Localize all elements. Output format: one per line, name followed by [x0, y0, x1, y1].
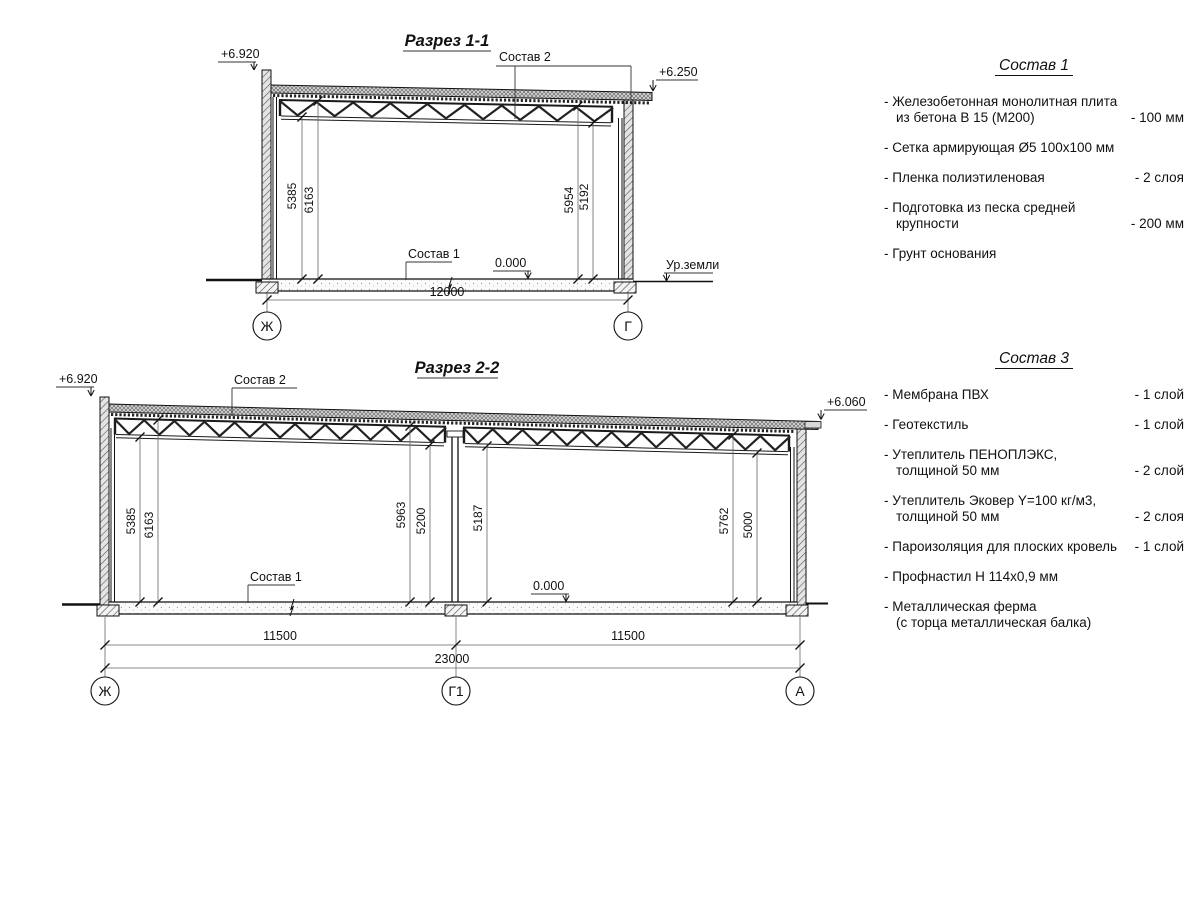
wall-left — [100, 397, 109, 612]
footing — [614, 282, 636, 293]
legend-line: - Сетка армирующая Ø5 100х100 мм — [884, 140, 1114, 156]
legend-line: - Утеплитель Эковер Y=100 кг/м3, — [884, 493, 1096, 509]
footing — [256, 282, 278, 293]
legend-line: (с торца металлическая балка) — [884, 615, 1091, 631]
legend-value: - 100 мм — [1125, 110, 1184, 126]
callout-sostav2: Состав 2 — [499, 50, 551, 64]
legend-sostav-1: Состав 1 - Железобетонная монолитная пли… — [884, 57, 1184, 276]
dim-height: 5385 — [124, 507, 138, 534]
legend-line: толщиной 50 мм — [884, 463, 1057, 479]
dim-height: 5963 — [394, 501, 408, 528]
dim-height: 5200 — [414, 507, 428, 534]
dim-height: 5192 — [577, 183, 591, 210]
callout-sostav2: Состав 2 — [234, 373, 286, 387]
legend-value: - 2 слоя — [1129, 509, 1184, 525]
dim-span: 11500 — [263, 629, 297, 643]
legend-line: толщиной 50 мм — [884, 509, 1096, 525]
legend-item: - Геотекстиль - 1 слой — [884, 417, 1184, 433]
drawing-sheet: { "section1": { "title": "Разрез 1-1", "… — [0, 0, 1200, 900]
legend-value: - 1 слой — [1129, 417, 1184, 433]
legend-item: - Утеплитель Эковер Y=100 кг/м3,толщиной… — [884, 493, 1184, 525]
legend-item: - Железобетонная монолитная плитаиз бето… — [884, 94, 1184, 126]
wall-left — [262, 70, 271, 286]
section-title: Разрез 2-2 — [415, 359, 500, 377]
legend-item: - Утеплитель ПЕНОПЛЭКС,толщиной 50 мм - … — [884, 447, 1184, 479]
legend-item: - Пленка полиэтиленовая - 2 слоя — [884, 170, 1184, 186]
legend-line: - Подготовка из песка средней — [884, 200, 1075, 216]
elevation-mark: +6.250 — [659, 65, 698, 79]
zero-level: 0.000 — [533, 579, 564, 593]
roof-slab — [271, 85, 652, 101]
elevation-mark: +6.920 — [221, 47, 260, 61]
elevation-mark: +6.060 — [827, 395, 866, 409]
roof-truss — [279, 100, 613, 126]
middle-column — [452, 437, 458, 606]
legend-title: Состав 1 — [884, 57, 1184, 75]
dim-height: 5000 — [741, 511, 755, 538]
legend-line: - Пароизоляция для плоских кровель — [884, 539, 1117, 555]
footing — [97, 605, 119, 616]
section-2-2: Разрез 2-2 +6.920 +6.060 Состав 2 Состав… — [56, 359, 867, 705]
footing — [445, 605, 467, 616]
legend-line: - Грунт основания — [884, 246, 996, 262]
legend-line: - Металлическая ферма — [884, 599, 1091, 615]
legend-item: - Металлическая ферма(с торца металличес… — [884, 599, 1184, 631]
legend-item: - Мембрана ПВХ - 1 слой — [884, 387, 1184, 403]
axis-label: Ж — [99, 683, 112, 699]
legend-value: - 200 мм — [1125, 216, 1184, 232]
legend-item: - Профнастил Н 114х0,9 мм — [884, 569, 1184, 585]
dim-height: 5762 — [717, 507, 731, 534]
legend-line: - Геотекстиль — [884, 417, 968, 433]
legend-title: Состав 3 — [884, 350, 1184, 368]
dim-height: 5187 — [471, 504, 485, 531]
elevation-mark: +6.920 — [59, 372, 98, 386]
section-1-1: Разрез 1-1 +6.920 +6.250 Состав 2 Состав… — [206, 32, 719, 340]
roof-slab — [109, 404, 818, 430]
dim-height: 6163 — [142, 511, 156, 538]
legend-value: - 1 слой — [1129, 387, 1184, 403]
column-cap — [447, 431, 463, 437]
axis-label: Г — [624, 318, 632, 334]
dim-span: 12000 — [430, 285, 465, 299]
legend-item: - Грунт основания — [884, 246, 1184, 262]
legend-line: - Мембрана ПВХ — [884, 387, 989, 403]
axis-label: А — [795, 683, 805, 699]
legend-title-text: Состав 1 — [995, 57, 1073, 76]
footing — [786, 605, 808, 616]
legend-value: - 2 слоя — [1129, 170, 1184, 186]
legend-line: - Пленка полиэтиленовая — [884, 170, 1045, 186]
wall-right — [624, 100, 633, 286]
legend-item: - Пароизоляция для плоских кровель - 1 с… — [884, 539, 1184, 555]
dim-height: 5385 — [285, 182, 299, 209]
callout-sostav1: Состав 1 — [408, 247, 460, 261]
ground-label: Ур.земли — [666, 258, 719, 272]
legend-line: - Утеплитель ПЕНОПЛЭКС, — [884, 447, 1057, 463]
roof-truss — [114, 419, 446, 446]
legend-value: - 2 слой — [1129, 463, 1184, 479]
legend-line: - Профнастил Н 114х0,9 мм — [884, 569, 1058, 585]
wall-right — [797, 429, 806, 612]
legend-item: - Сетка армирующая Ø5 100х100 мм — [884, 140, 1184, 156]
dim-height: 6163 — [302, 186, 316, 213]
axis-label: Г1 — [448, 683, 464, 699]
legend-sostav-3: Состав 3 - Мембрана ПВХ - 1 слой - Геоте… — [884, 350, 1184, 645]
legend-line: - Железобетонная монолитная плита — [884, 94, 1117, 110]
legend-value: - 1 слой — [1129, 539, 1184, 555]
section-title: Разрез 1-1 — [405, 32, 490, 50]
roof-edge-cap — [805, 422, 821, 429]
callout-sostav1: Состав 1 — [250, 570, 302, 584]
dim-height: 5954 — [562, 186, 576, 213]
legend-item: - Подготовка из песка среднейкрупности -… — [884, 200, 1184, 232]
zero-level: 0.000 — [495, 256, 526, 270]
dim-total: 23000 — [435, 652, 470, 666]
legend-line: крупности — [884, 216, 1075, 232]
dim-span: 11500 — [611, 629, 645, 643]
legend-title-text: Состав 3 — [995, 350, 1073, 369]
axis-label: Ж — [261, 318, 274, 334]
legend-line: из бетона В 15 (М200) — [884, 110, 1117, 126]
